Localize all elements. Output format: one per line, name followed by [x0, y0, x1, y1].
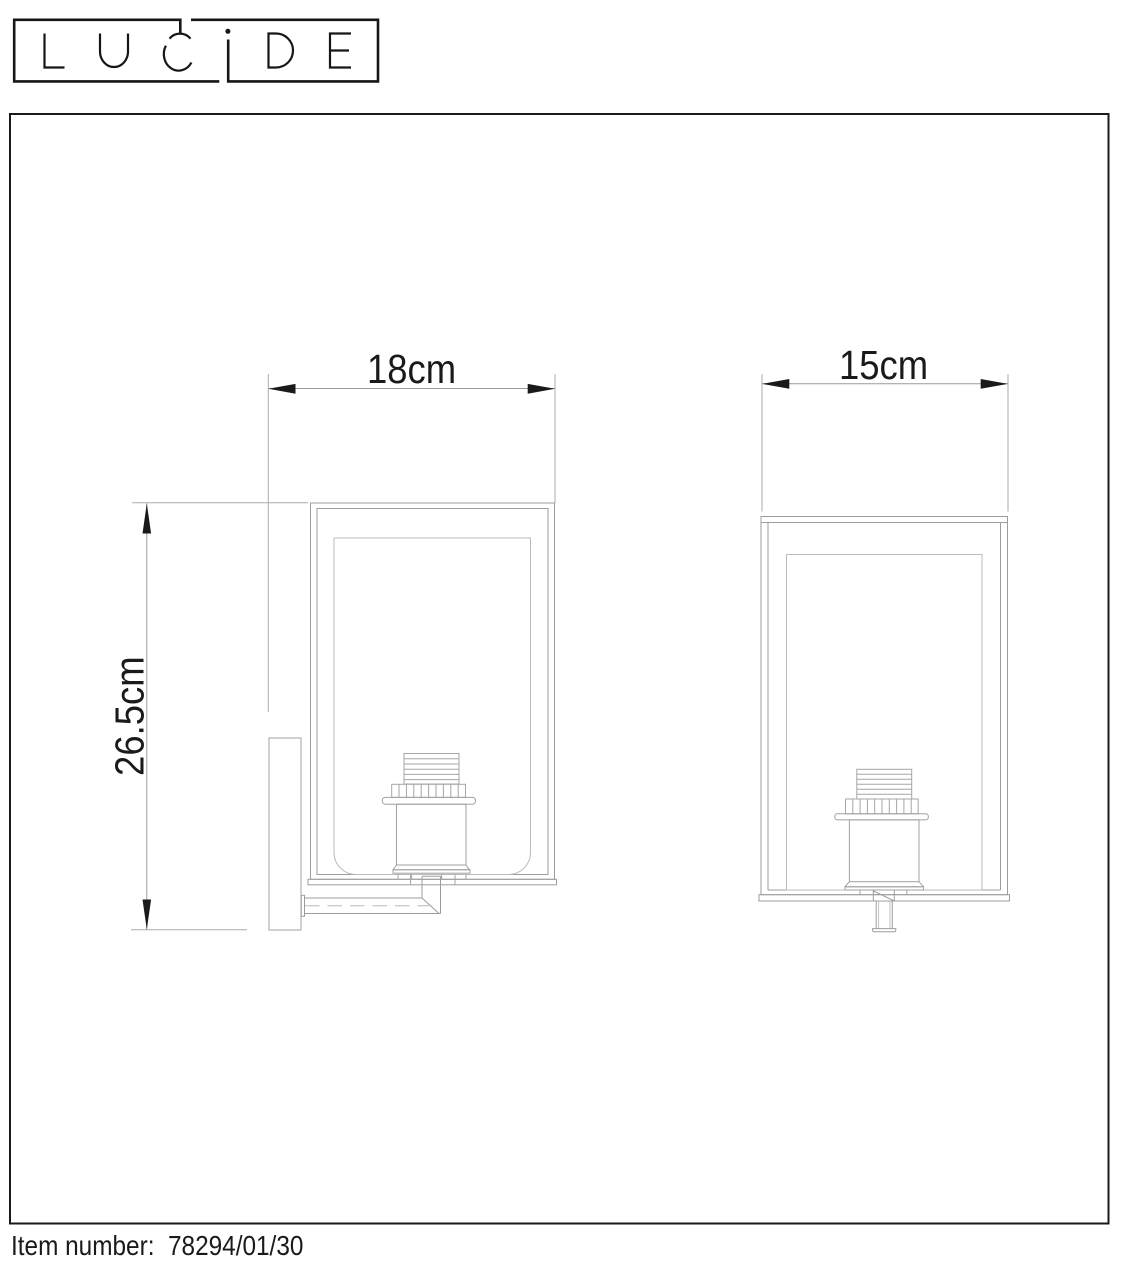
svg-text:18cm: 18cm	[367, 347, 456, 392]
svg-text:Item number: 78294/01/30: Item number: 78294/01/30	[11, 1229, 303, 1261]
svg-text:15cm: 15cm	[839, 343, 928, 388]
svg-text:26.5cm: 26.5cm	[108, 656, 153, 775]
